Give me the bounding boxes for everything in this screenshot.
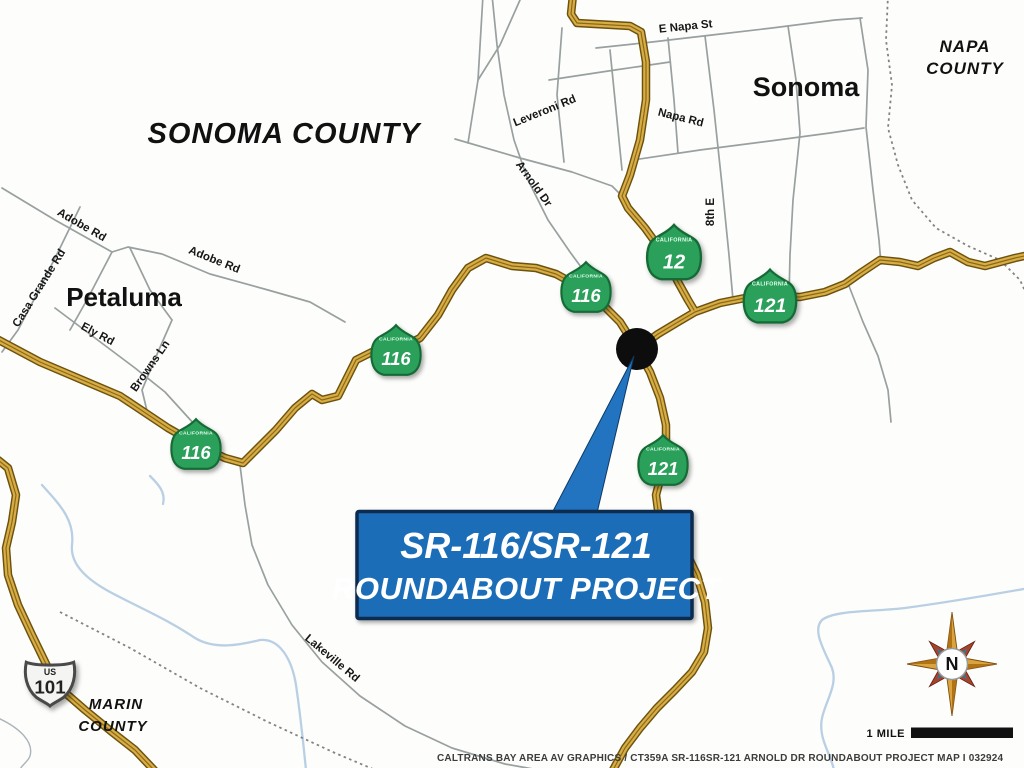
project-map: E Napa St Leveroni Rd Napa Rd Arnold Dr … <box>0 0 1024 768</box>
scale-bar-group: 1 MILE <box>867 728 1013 741</box>
label-marin-county-1: MARIN <box>89 696 143 713</box>
road-minor <box>788 26 800 297</box>
shield-sr121-east: CALIFORNIA 121 <box>744 270 796 323</box>
shield-state-label: CALIFORNIA <box>379 336 413 342</box>
shield-number-121: 121 <box>754 295 787 317</box>
label-sonoma-county: SONOMA COUNTY <box>148 118 423 150</box>
corner-creek <box>0 718 31 768</box>
callout-title-line1: SR-116/SR-121 <box>400 525 651 566</box>
shield-number-116: 116 <box>571 285 601 306</box>
shield-number-116: 116 <box>181 442 211 463</box>
label-napa-rd: Napa Rd <box>657 107 705 130</box>
scale-bar <box>911 728 1013 739</box>
road-minor <box>478 0 520 80</box>
label-casa-grande-rd: Casa Grande Rd <box>11 247 69 329</box>
road-minor <box>468 0 483 143</box>
label-arnold-dr: Arnold Dr <box>513 159 554 209</box>
shield-state-label: CALIFORNIA <box>656 237 693 243</box>
label-city-petaluma: Petaluma <box>66 282 182 312</box>
callout-title-line2: ROUNDABOUT PROJECT <box>332 571 722 606</box>
label-city-sonoma: Sonoma <box>753 72 860 102</box>
callout-pointer <box>552 356 634 513</box>
road-minor <box>860 18 881 264</box>
shield-number-12: 12 <box>663 252 685 274</box>
east-creek <box>818 588 1024 768</box>
shield-sr116-west: CALIFORNIA 116 <box>171 419 220 469</box>
road-minor <box>549 62 670 80</box>
label-e-napa-st: E Napa St <box>658 18 713 36</box>
highways <box>0 0 1024 768</box>
shield-state-label: CALIFORNIA <box>569 273 603 279</box>
label-ely-rd: Ely Rd <box>79 321 116 348</box>
label-napa-county-1: NAPA <box>940 37 991 56</box>
road-minor <box>610 50 622 170</box>
shield-sr116-mid: CALIFORNIA 116 <box>371 325 420 375</box>
shield-number-116: 116 <box>381 348 411 369</box>
label-napa-county-2: COUNTY <box>926 59 1004 78</box>
road-minor <box>668 38 678 153</box>
shield-sr116-east: CALIFORNIA 116 <box>561 262 610 312</box>
shield-number-101: 101 <box>34 677 65 698</box>
label-marin-county-2: COUNTY <box>78 718 148 735</box>
shield-sr12: CALIFORNIA 12 <box>647 225 701 279</box>
road-napa-rd <box>633 128 864 160</box>
small-creek <box>150 476 164 504</box>
marin-county-line <box>60 612 380 768</box>
shield-number-121: 121 <box>648 458 679 479</box>
label-browns-ln: Browns Ln <box>129 339 173 395</box>
label-leveroni-rd: Leveroni Rd <box>512 93 578 129</box>
compass-rose: N <box>907 612 998 716</box>
roundabout-marker <box>616 328 658 370</box>
label-lakeville-rd: Lakeville Rd <box>302 633 361 685</box>
label-adobe-rd-east: Adobe Rd <box>187 244 242 275</box>
shield-us-label: US <box>44 667 56 677</box>
label-8th-e: 8th E <box>705 198 717 226</box>
shield-state-label: CALIFORNIA <box>179 430 213 436</box>
road-minor <box>849 286 891 422</box>
region-labels: SONOMA COUNTY NAPA COUNTY MARIN COUNTY S… <box>66 37 1004 735</box>
road-minor <box>557 28 564 162</box>
shield-sr121-south: CALIFORNIA 121 <box>638 435 687 485</box>
compass-north-label: N <box>946 654 959 674</box>
map-caption: CALTRANS BAY AREA AV GRAPHICS / CT359A S… <box>437 753 1004 764</box>
shield-state-label: CALIFORNIA <box>752 282 788 288</box>
scale-label: 1 MILE <box>867 728 905 740</box>
map-canvas: E Napa St Leveroni Rd Napa Rd Arnold Dr … <box>0 0 1024 768</box>
shield-state-label: CALIFORNIA <box>646 446 680 452</box>
road-8th-e <box>705 36 733 300</box>
